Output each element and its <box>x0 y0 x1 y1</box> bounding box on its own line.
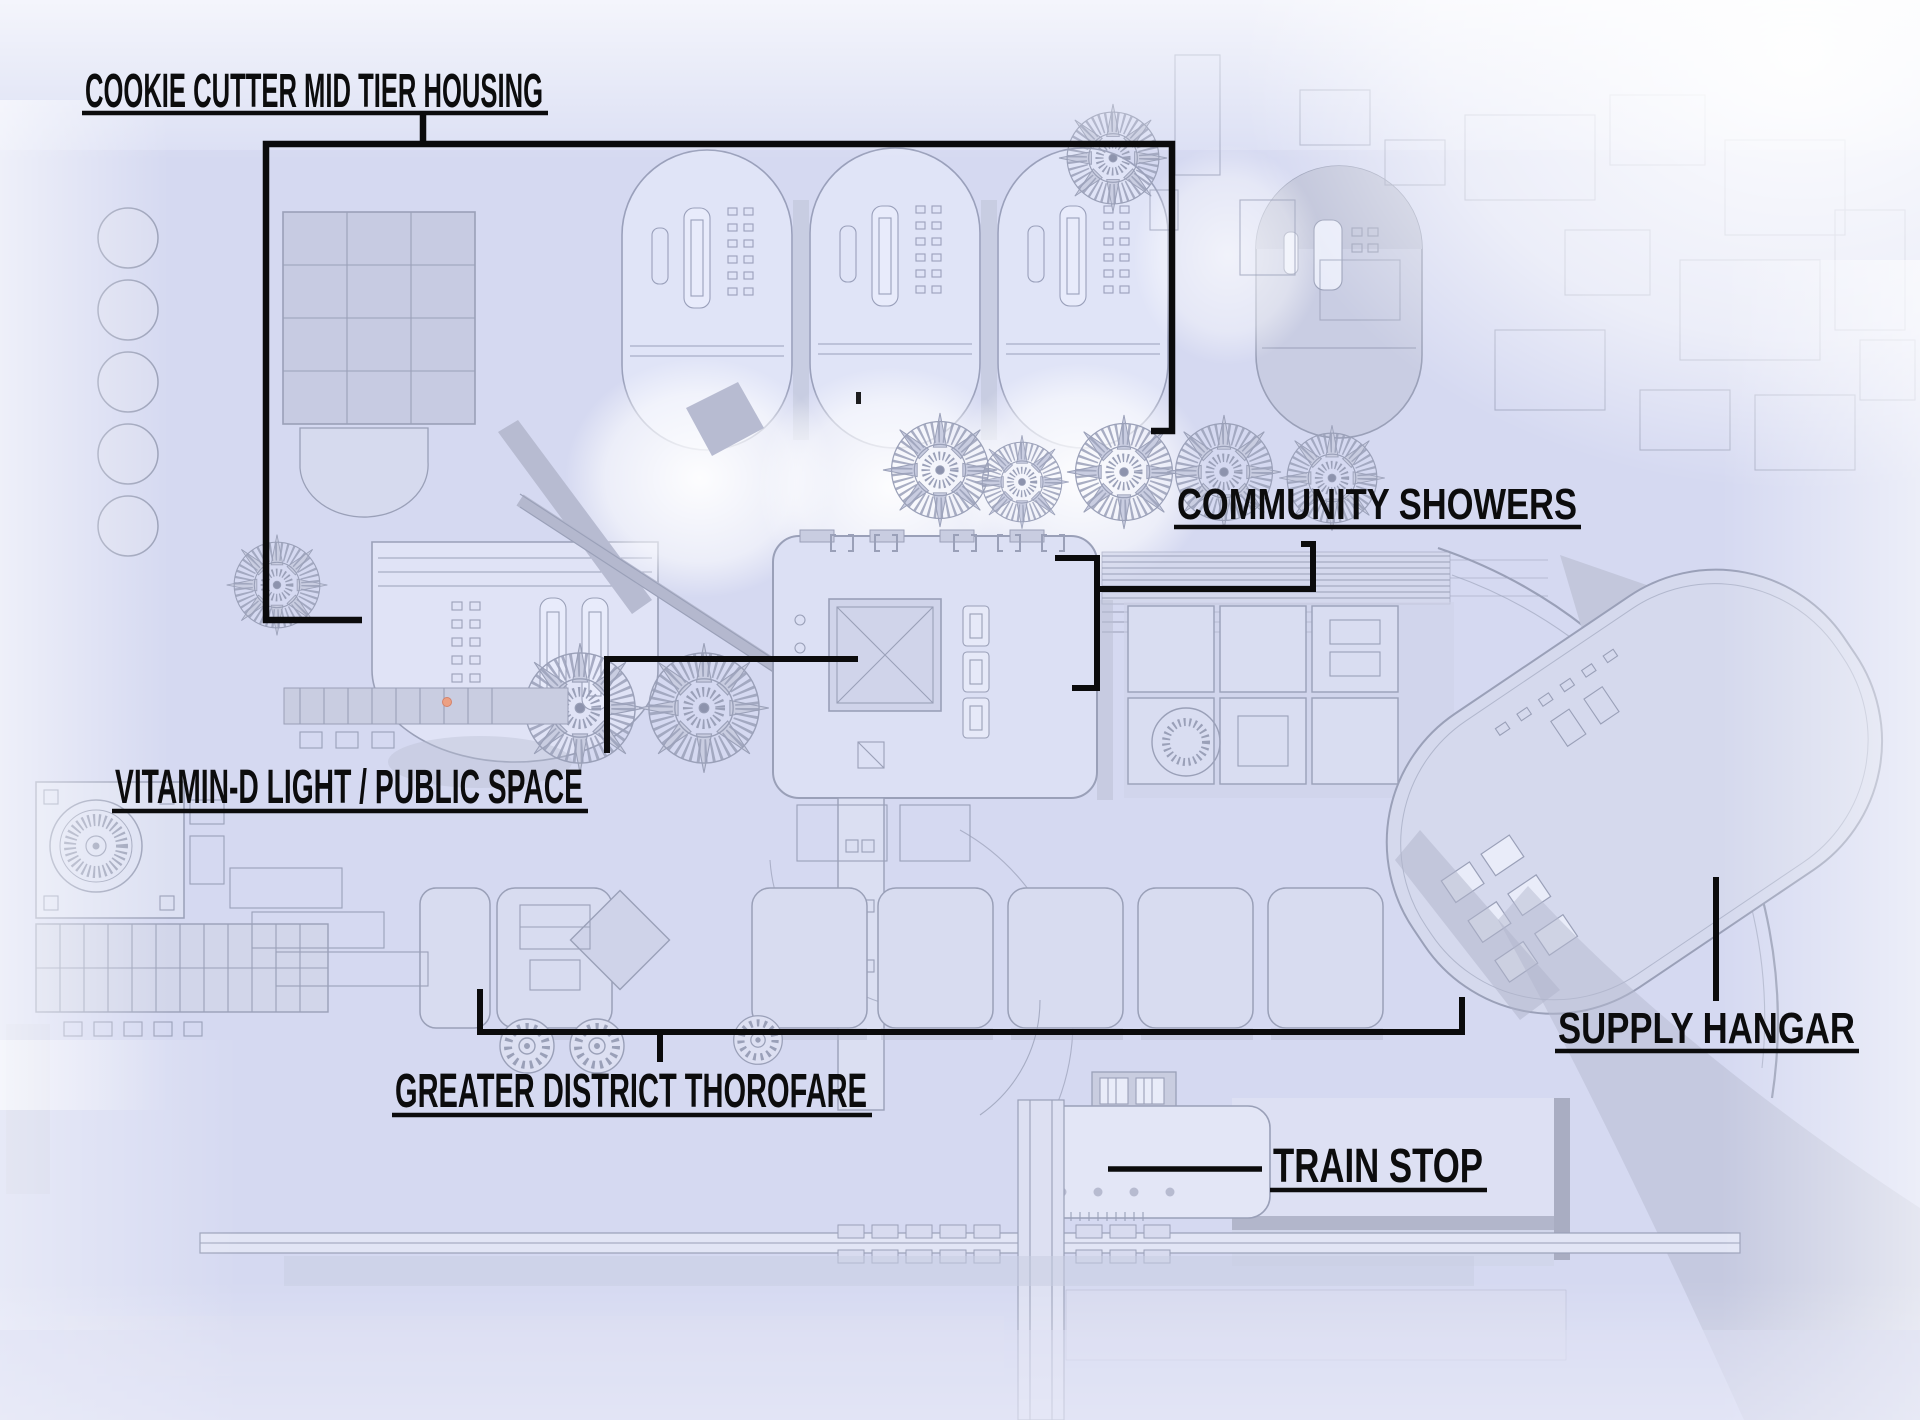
label-vitamin-d: VITAMIN-D LIGHT / PUBLIC SPACE <box>115 761 583 814</box>
highlight-dot <box>443 698 452 707</box>
label-hangar: SUPPLY HANGAR <box>1558 1004 1855 1053</box>
blueprint-stage: COOKIE CUTTER MID TIER HOUSING COMMUNITY… <box>0 0 1920 1420</box>
blueprint-canvas: COOKIE CUTTER MID TIER HOUSING COMMUNITY… <box>0 0 1920 1420</box>
label-housing: COOKIE CUTTER MID TIER HOUSING <box>85 65 543 118</box>
train-stop-building <box>1032 1106 1270 1218</box>
stray-mark <box>856 392 861 404</box>
label-train: TRAIN STOP <box>1273 1140 1483 1193</box>
label-thorofare: GREATER DISTRICT THOROFARE <box>395 1065 867 1118</box>
label-showers: COMMUNITY SHOWERS <box>1177 480 1577 529</box>
